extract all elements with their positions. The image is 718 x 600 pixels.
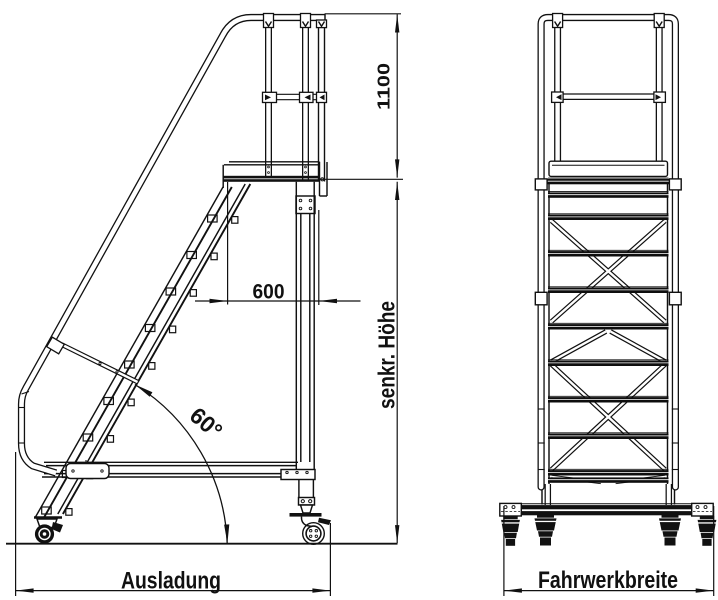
svg-text:Fahrwerkbreite: Fahrwerkbreite [538,567,678,594]
svg-text:600: 600 [253,279,285,303]
svg-text:1100: 1100 [374,63,394,110]
svg-text:Ausladung: Ausladung [121,567,221,594]
svg-text:senkr. Höhe: senkr. Höhe [374,301,400,409]
